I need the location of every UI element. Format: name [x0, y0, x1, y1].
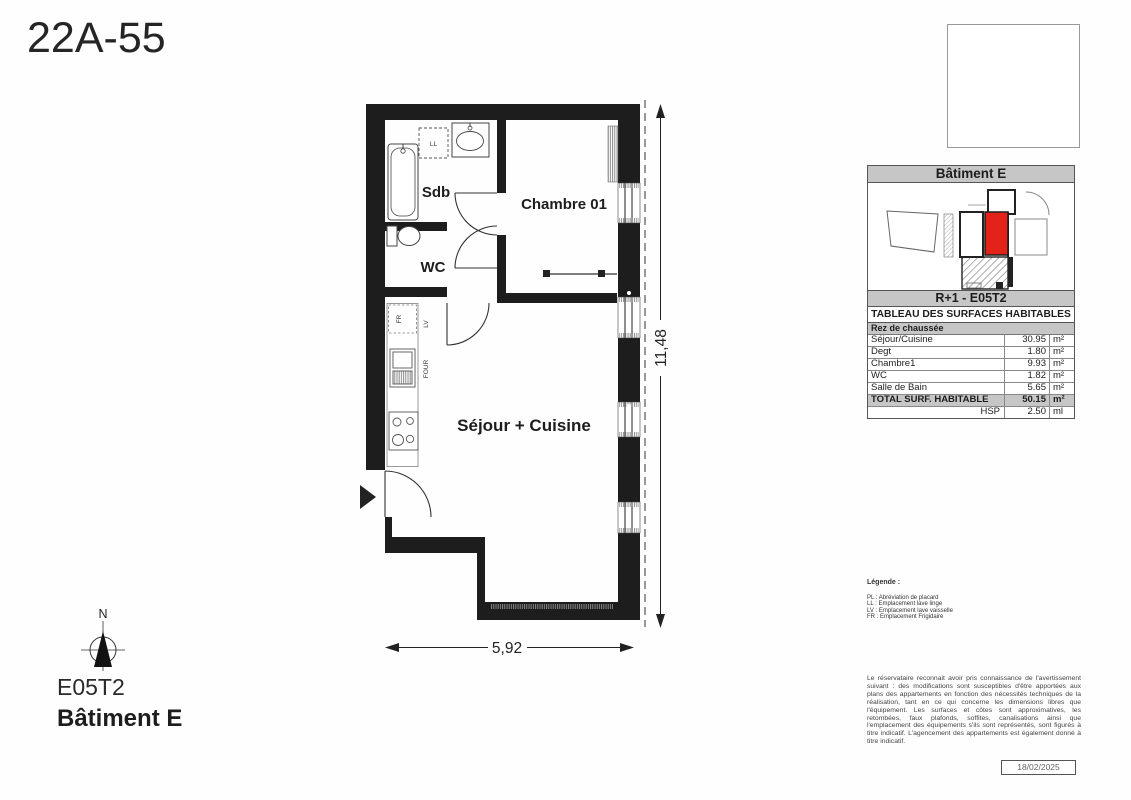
- room-label-wc: WC: [421, 259, 446, 276]
- row-unit: m²: [1049, 335, 1072, 346]
- oven-label: FOUR: [423, 359, 430, 378]
- closet-icon: [543, 270, 617, 277]
- room-label-sdb: Sdb: [422, 184, 450, 201]
- date-box: 18/02/2025: [1001, 760, 1076, 775]
- highlighted-unit: [985, 212, 1008, 255]
- legend: Légende : PL : Abréviation de placard LL…: [867, 579, 1067, 621]
- page-title: 22A-55: [27, 14, 166, 63]
- fridge-label: FR: [396, 314, 403, 323]
- row-unit: m²: [1049, 383, 1072, 394]
- table-title: TABLEAU DES SURFACES HABITABLES: [868, 307, 1074, 323]
- toilet-icon: [387, 226, 420, 246]
- compass-north-label: N: [98, 607, 107, 621]
- washer-spot: LL: [419, 128, 448, 158]
- kitchen-counter: FR LV FOUR: [387, 304, 430, 467]
- legend-item: FR : Emplacement Frigidaire: [867, 614, 1067, 620]
- row-value: 1.82: [1004, 371, 1049, 382]
- floorplan-drawing: LL FR LV FOUR: [350, 88, 695, 668]
- washer-label: LL: [430, 141, 438, 148]
- compass: N: [80, 604, 128, 676]
- row-label: Degt: [868, 347, 1004, 358]
- dishwasher-label: LV: [423, 320, 430, 328]
- row-label: WC: [868, 371, 1004, 382]
- logo-placeholder-box: [947, 24, 1080, 148]
- row-value: 9.93: [1004, 359, 1049, 370]
- bathtub-icon: [388, 144, 418, 220]
- floorplan-page: 22A-55: [0, 0, 1131, 800]
- hsp-unit: ml: [1049, 407, 1072, 418]
- row-value: 5.65: [1004, 383, 1049, 394]
- floor-unit-header: R+1 - E05T2: [868, 291, 1074, 307]
- row-label: Séjour/Cuisine: [868, 335, 1004, 346]
- disclaimer-text: Le réservataire reconnait avoir pris con…: [867, 675, 1081, 746]
- hsp-label: HSP: [868, 407, 1004, 418]
- row-label: Salle de Bain: [868, 383, 1004, 394]
- row-value: 1.80: [1004, 347, 1049, 358]
- dimension-height-label: 11,48: [653, 329, 670, 367]
- row-unit: m²: [1049, 359, 1072, 370]
- row-label: Chambre1: [868, 359, 1004, 370]
- legend-title: Légende :: [867, 579, 1067, 586]
- entrance-arrow-icon: [360, 485, 376, 509]
- hsp-value: 2.50: [1004, 407, 1049, 418]
- total-label: TOTAL SURF. HABITABLE: [868, 395, 1004, 406]
- row-unit: m²: [1049, 347, 1072, 358]
- row-value: 30.95: [1004, 335, 1049, 346]
- mini-plan: [868, 183, 1074, 291]
- room-label-chambre: Chambre 01: [521, 196, 607, 213]
- washbasin-icon: [452, 123, 489, 157]
- dimension-width-label: 5,92: [492, 640, 522, 657]
- total-unit: m²: [1049, 395, 1072, 406]
- row-unit: m²: [1049, 371, 1072, 382]
- table-row-hsp: HSP 2.50 ml: [868, 407, 1074, 418]
- unit-code: E05T2: [57, 674, 125, 701]
- building-header: Bâtiment E: [868, 166, 1074, 183]
- total-value: 50.15: [1004, 395, 1049, 406]
- compass-needle-icon: [94, 631, 112, 667]
- mini-plan-drawing: [868, 183, 1072, 290]
- room-label-sejour: Séjour + Cuisine: [457, 416, 591, 435]
- surface-table: Bâtiment E: [867, 165, 1075, 419]
- unit-building: Bâtiment E: [57, 705, 182, 733]
